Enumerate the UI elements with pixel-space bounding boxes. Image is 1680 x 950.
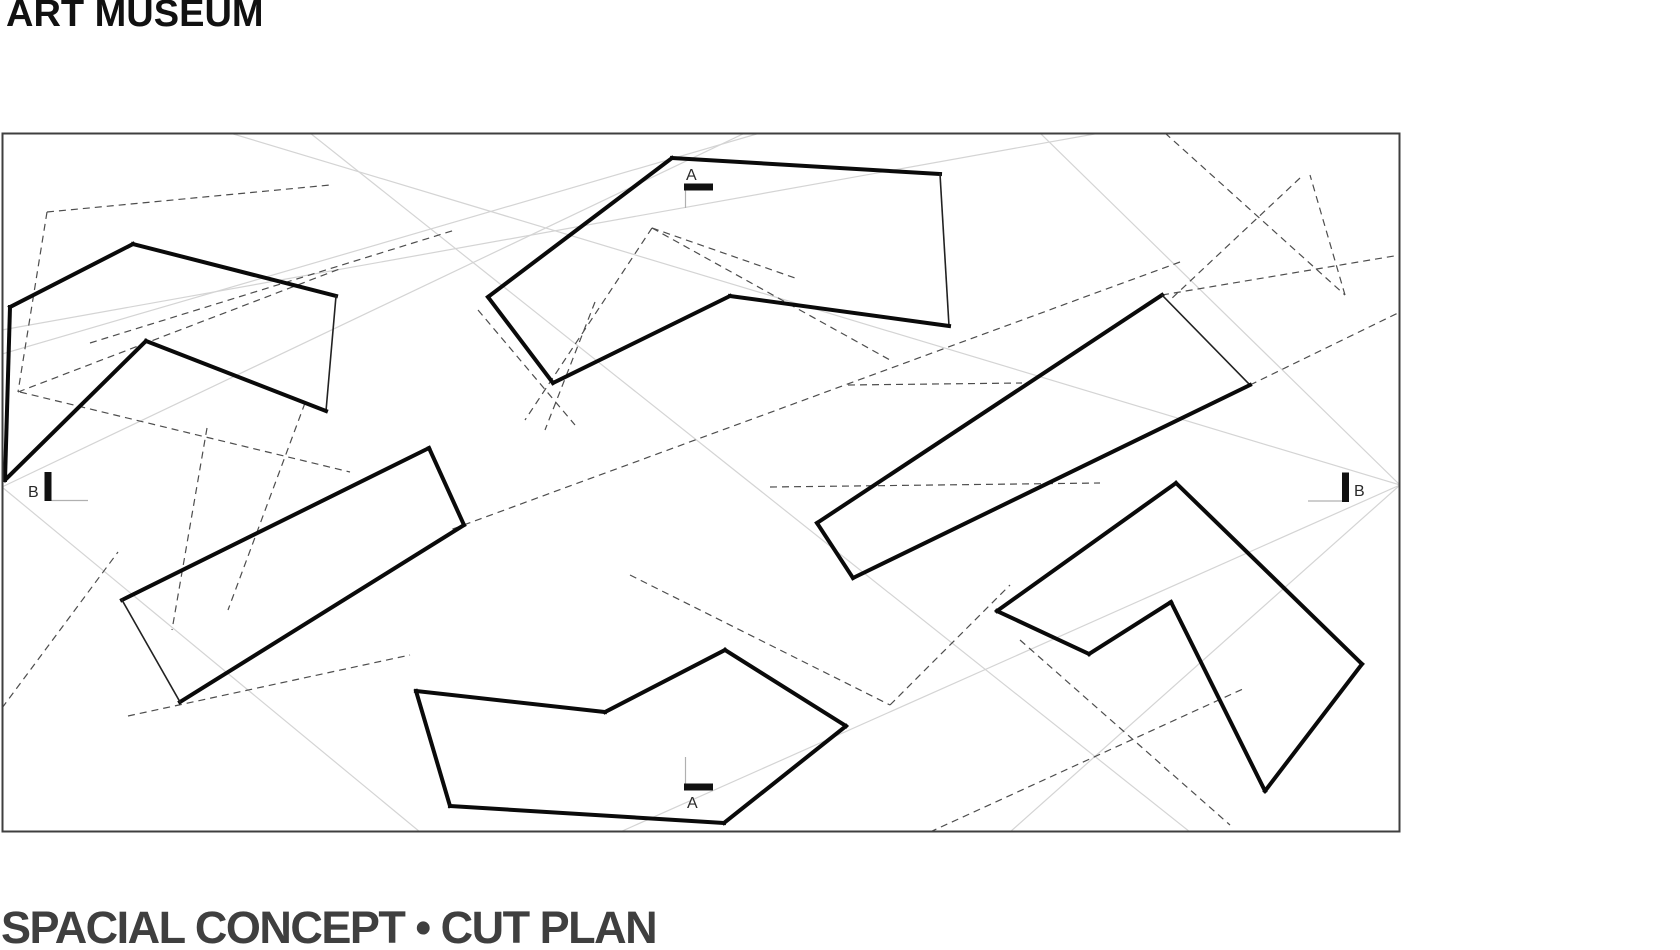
gallery-volume-east-bar-edge [817,523,853,578]
gallery-volume-south-edge [605,650,725,712]
section-marker-b-left-label: B [28,484,39,501]
gallery-volume-south-edge [416,691,605,712]
gallery-volume-southeast-edge [1089,602,1171,654]
gallery-volume-west-edge [122,600,180,702]
dashed-construction-lines [2,133,1400,832]
dashed-construction-line [630,575,890,705]
gallery-volume-north-edge [488,158,672,297]
light-guide-line [2,133,1100,330]
gallery-volume-west [122,448,464,702]
dashed-construction-line [848,383,1022,385]
gallery-volume-north-edge [940,174,949,326]
section-marker-a-top-label: A [686,167,697,184]
gallery-volume-southeast [997,483,1362,791]
gallery-volume-northwest-edge [5,341,146,480]
plan-interior [2,133,1400,832]
dashed-construction-line [478,310,575,425]
dashed-construction-line [172,428,207,630]
section-marker-b-right-bar [1342,473,1349,503]
section-marker-b-left-bar [45,472,52,501]
dashed-construction-line [1020,640,1230,825]
gallery-volume-northwest-edge [146,341,326,411]
light-guide-lines [2,133,1400,832]
dashed-construction-line [652,228,795,278]
concept-shapes [5,158,1362,823]
dashed-construction-line [47,185,330,212]
dashed-construction-line [890,585,1010,705]
section-marker-a-bottom-bar [684,784,713,791]
gallery-volume-southeast-edge [1171,602,1265,791]
gallery-volume-north-edge [553,296,730,383]
dashed-construction-line [1162,255,1400,295]
section-marker-b-left: B [28,472,88,501]
section-marker-b-right-label: B [1354,483,1365,500]
concept-plan-page: ART MUSEUM AABB SPACIAL CONCEPT • CUT PL… [0,0,1680,950]
gallery-volume-north-edge [488,297,553,383]
gallery-volume-west-edge [429,448,464,525]
gallery-volume-east-bar [817,295,1250,578]
gallery-volume-southeast-edge [1265,664,1362,791]
dashed-construction-line [1250,312,1400,385]
gallery-volume-south-edge [724,726,846,823]
light-guide-line [1010,485,1400,832]
light-guide-line [1040,133,1400,485]
section-marker-a-top-bar [684,184,713,191]
gallery-volume-east-bar-edge [853,385,1250,578]
cut-plan-drawing: AABB [0,0,1680,950]
dashed-construction-line [450,262,1180,530]
section-marker-a-bottom: A [684,757,713,812]
dashed-construction-line [2,552,118,708]
dashed-construction-line [1165,133,1345,295]
section-marker-b-right: B [1308,473,1365,503]
drawing-caption: SPACIAL CONCEPT • CUT PLAN [1,905,656,950]
dashed-construction-line [20,392,350,472]
section-marker-a-bottom-label: A [687,795,698,812]
dashed-construction-line [1170,178,1300,300]
gallery-volume-southeast-edge [997,611,1089,654]
gallery-volume-south [416,650,846,823]
gallery-volume-north-edge [672,158,940,174]
gallery-volume-south-edge [725,650,846,726]
gallery-volume-east-bar-edge [817,295,1162,523]
gallery-volume-southeast-edge [1176,483,1362,664]
dashed-construction-line [652,228,890,360]
dashed-construction-line [930,688,1245,832]
section-marker-a-top: A [684,167,713,208]
drawing-frame [3,134,1400,832]
gallery-volume-northwest-edge [5,307,10,480]
gallery-volume-southeast-edge [997,483,1176,611]
gallery-volume-south-edge [416,691,450,806]
light-guide-line [2,487,420,832]
dashed-construction-line [228,403,305,610]
light-guide-line [310,133,1190,832]
dashed-construction-line [1310,175,1345,295]
gallery-volume-northwest-edge [10,244,133,307]
light-guide-line [2,133,760,354]
gallery-volume-northwest-edge [326,296,336,411]
gallery-volume-south-edge [450,806,724,823]
gallery-volume-north-edge [730,296,949,326]
gallery-volume-east-bar-edge [1162,295,1250,385]
